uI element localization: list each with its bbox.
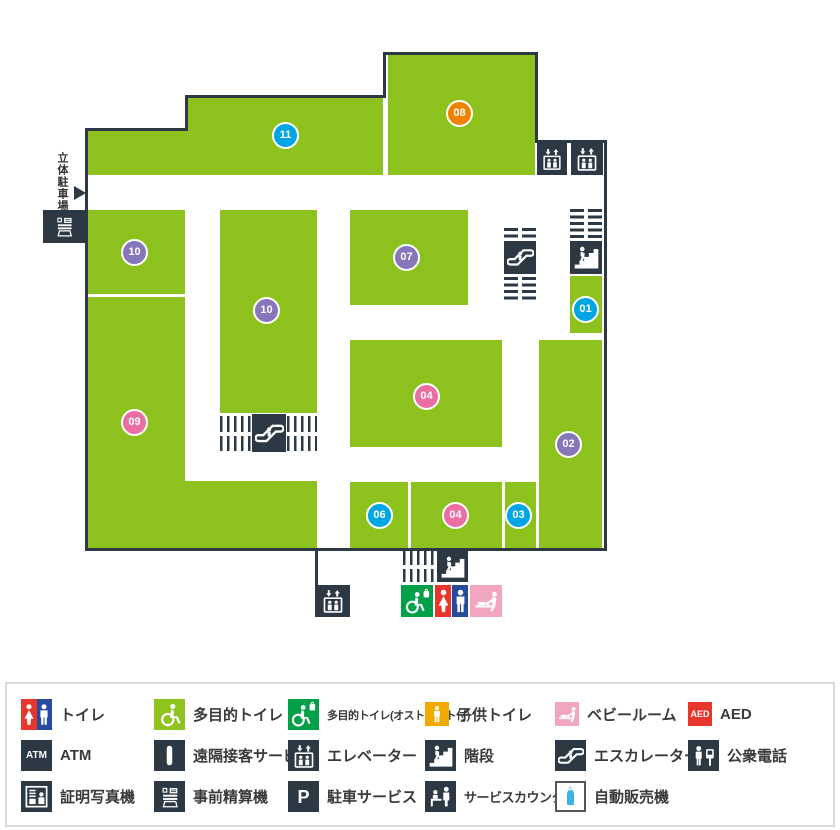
legend-item-accessible-toilet: 多目的トイレ	[154, 699, 283, 730]
legend-label: 事前精算機	[193, 786, 268, 807]
womens-toilet-icon	[435, 585, 451, 617]
legend-label: ATM	[60, 747, 91, 764]
parking-service-icon: P	[288, 781, 319, 812]
area-badge-01: 01	[572, 296, 599, 323]
pre-payment-machine-icon	[43, 210, 85, 243]
stairs-hatch	[570, 209, 602, 239]
stairs-icon	[425, 740, 456, 771]
elevator-icon	[288, 740, 319, 771]
escalator-icon	[504, 241, 536, 274]
legend-label: ベビールーム	[587, 704, 677, 725]
accessible-ostomate-toilet-icon	[288, 699, 319, 730]
area-badge-08: 08	[446, 100, 473, 127]
mens-toilet-icon	[452, 585, 468, 617]
map-wall-south	[85, 548, 607, 551]
escalator-hatch	[220, 416, 251, 451]
escalator-hatch	[504, 228, 536, 239]
legend-item-stairs: 階段	[425, 740, 494, 771]
legend-label: 駐車サービス	[327, 786, 417, 807]
escalator-hatch	[504, 277, 536, 300]
map-wall-elevator-stub	[315, 551, 318, 585]
area-badge-09: 09	[121, 409, 148, 436]
legend-item-elevator: エレベーター	[288, 740, 417, 771]
area-badge-07: 07	[393, 244, 420, 271]
area-badge-02: 02	[555, 431, 582, 458]
area-badge-03: 03	[505, 502, 532, 529]
legend-item-escalator: エスカレーター	[555, 740, 699, 771]
photo-booth-icon	[21, 781, 52, 812]
legend-label: 自動販売機	[594, 786, 669, 807]
parking-entrance-label: 立体駐車場	[54, 152, 70, 212]
map-area-09-east[interactable]	[185, 481, 317, 548]
legend: トイレ 多目的トイレ 多目的トイレ(オストメイト付) 子供トイレ ベビールーム …	[5, 682, 835, 827]
legend-label: エレベーター	[327, 745, 417, 766]
floor-map: 11 08 10 09 10 07 04 06 04 03 02 01 立体駐車…	[0, 0, 840, 660]
legend-item-toilet: トイレ	[21, 699, 105, 730]
elevator-icon	[571, 143, 603, 175]
legend-label: トイレ	[60, 704, 105, 725]
baby-room-icon	[555, 702, 579, 726]
legend-item-baby-room: ベビールーム	[555, 702, 677, 726]
area-badge-10-west: 10	[121, 239, 148, 266]
escalator-icon	[252, 414, 286, 452]
parking-entrance-arrow-icon	[74, 186, 86, 200]
legend-item-parking-service: P 駐車サービス	[288, 781, 417, 812]
area-badge-04-main: 04	[413, 383, 440, 410]
kids-toilet-icon	[425, 702, 449, 726]
elevator-icon	[537, 143, 567, 175]
atm-icon: ATM	[21, 740, 52, 771]
area-badge-11: 11	[272, 122, 299, 149]
map-wall-step-center	[383, 52, 386, 98]
area-badge-04-south: 04	[442, 502, 469, 529]
legend-item-atm: ATM ATM	[21, 740, 91, 771]
map-area-11-lower[interactable]	[88, 131, 383, 175]
escalator-icon	[555, 740, 586, 771]
map-wall-east-upper	[535, 52, 538, 143]
elevator-icon	[315, 585, 350, 617]
stairs-hatch	[403, 551, 435, 582]
legend-label: 公衆電話	[727, 745, 787, 766]
vending-machine-icon	[555, 781, 586, 812]
legend-label: AED	[720, 706, 752, 723]
baby-room-icon	[470, 585, 502, 617]
area-badge-10-center: 10	[253, 297, 280, 324]
legend-label: 多目的トイレ	[193, 704, 283, 725]
legend-item-payment-machine: 事前精算機	[154, 781, 268, 812]
accessible-toilet-icon	[154, 699, 185, 730]
legend-label: 階段	[464, 745, 494, 766]
stairs-icon	[437, 551, 468, 582]
legend-label: 証明写真機	[60, 786, 135, 807]
aed-icon: AED	[688, 702, 712, 726]
accessible-ostomate-toilet-icon	[401, 585, 433, 617]
legend-label: 子供トイレ	[457, 704, 532, 725]
public-phone-icon	[688, 740, 719, 771]
legend-item-aed: AED AED	[688, 702, 752, 726]
legend-item-photo-booth: 証明写真機	[21, 781, 135, 812]
legend-item-kids-toilet: 子供トイレ	[425, 702, 532, 726]
remote-service-icon	[154, 740, 185, 771]
legend-item-vending-machine: 自動販売機	[555, 781, 669, 812]
service-counter-icon	[425, 781, 456, 812]
legend-item-public-phone: 公衆電話	[688, 740, 787, 771]
legend-item-service-counter: サービスカウンター	[425, 781, 577, 812]
area-badge-06: 06	[366, 502, 393, 529]
escalator-hatch	[287, 416, 317, 451]
stairs-icon	[570, 241, 602, 274]
payment-machine-icon	[154, 781, 185, 812]
toilet-icon	[21, 699, 52, 730]
legend-label: エスカレーター	[594, 745, 699, 766]
map-wall-east	[604, 140, 607, 551]
